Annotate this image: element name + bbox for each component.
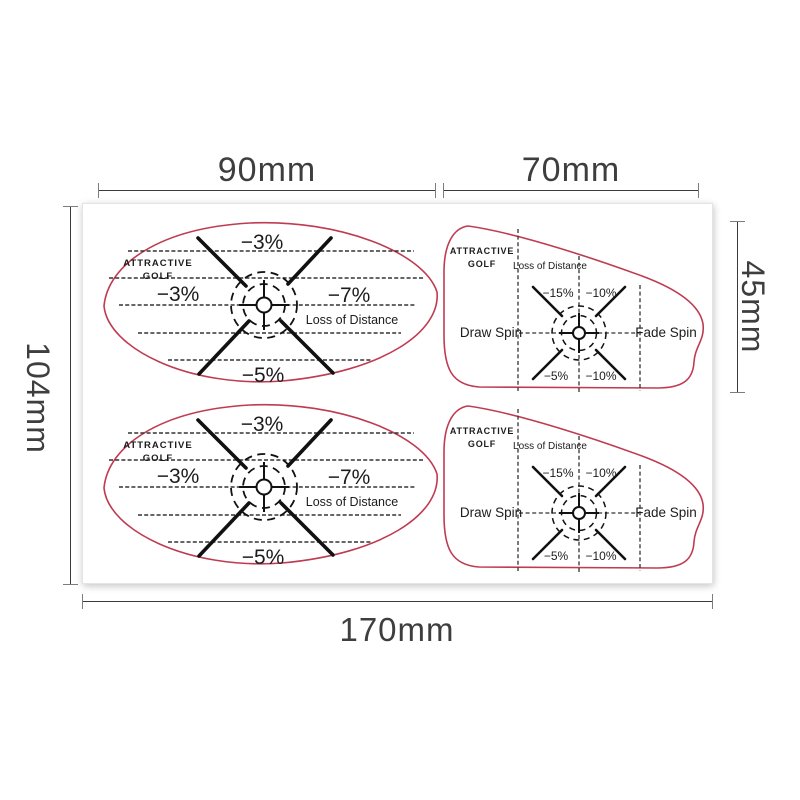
iron-sticker-bottom: ATTRACTIVE GOLF Loss of Distance −15% −1… [441, 397, 709, 577]
upper-left-pct: −15% [542, 466, 573, 480]
right-loss-pct: −7% [328, 466, 371, 489]
bottom-loss-pct: −5% [242, 546, 285, 569]
crosshair-center [257, 480, 272, 495]
crosshair-center [573, 507, 585, 519]
dim-45mm-tick-top [730, 221, 745, 222]
brand-line2: GOLF [468, 439, 496, 449]
dim-70mm-tick-right [698, 183, 699, 198]
dim-90mm-tick-right [435, 183, 436, 198]
fade-spin-label: Fade Spin [635, 505, 697, 520]
dim-45mm-line [737, 221, 738, 393]
loss-of-distance-label: Loss of Distance [306, 313, 398, 327]
brand-line1: ATTRACTIVE [450, 426, 514, 436]
sticker-sheet: ATTRACTIVE GOLF −3% −3% −7% Loss of Dist… [82, 203, 713, 584]
draw-spin-label: Draw Spin [460, 505, 522, 520]
dim-45mm-label: 45mm [734, 239, 772, 375]
right-loss-pct: −7% [328, 284, 371, 307]
brand-line1: ATTRACTIVE [450, 246, 514, 256]
crosshair-center [573, 327, 585, 339]
dim-70mm-tick-left [443, 183, 444, 198]
dim-70mm-line [443, 190, 699, 191]
top-loss-pct: −3% [241, 413, 284, 436]
dim-104mm-line [70, 206, 71, 585]
loss-of-distance-label: Loss of Distance [513, 441, 587, 452]
dim-90mm-tick-left [98, 183, 99, 198]
brand-line2: GOLF [143, 453, 173, 464]
crosshair-center [257, 298, 272, 313]
lower-right-pct: −10% [585, 369, 616, 383]
left-loss-pct: −3% [157, 465, 200, 488]
brand-line1: ATTRACTIVE [123, 258, 192, 269]
loss-of-distance-label: Loss of Distance [513, 261, 587, 272]
brand-line1: ATTRACTIVE [123, 440, 192, 451]
brand-line2: GOLF [143, 271, 173, 282]
dim-90mm-label: 90mm [199, 151, 335, 189]
top-loss-pct: −3% [241, 231, 284, 254]
dim-104mm-label: 104mm [19, 330, 57, 466]
dim-104mm-tick-top [63, 206, 78, 207]
driver-sticker-top: ATTRACTIVE GOLF −3% −3% −7% Loss of Dist… [100, 216, 440, 392]
upper-left-pct: −15% [542, 286, 573, 300]
dim-170mm-line [82, 601, 713, 602]
lower-left-pct: −5% [544, 549, 569, 563]
dim-170mm-tick-right [712, 594, 713, 609]
dim-170mm-label: 170mm [329, 611, 465, 649]
fade-spin-label: Fade Spin [635, 325, 697, 340]
iron-sticker-top: ATTRACTIVE GOLF Loss of Distance −15% −1… [441, 217, 709, 397]
dim-70mm-label: 70mm [503, 151, 639, 189]
bottom-loss-pct: −5% [242, 364, 285, 387]
lower-left-pct: −5% [544, 369, 569, 383]
dim-90mm-line [98, 190, 436, 191]
product-dimension-diagram: 90mm 70mm 104mm 45mm 170mm [0, 0, 800, 800]
loss-of-distance-label: Loss of Distance [306, 495, 398, 509]
driver-sticker-bottom: ATTRACTIVE GOLF −3% −3% −7% Loss of Dist… [100, 398, 440, 574]
left-loss-pct: −3% [157, 283, 200, 306]
dim-104mm-tick-bottom [63, 584, 78, 585]
lower-right-pct: −10% [585, 549, 616, 563]
upper-right-pct: −10% [585, 466, 616, 480]
draw-spin-label: Draw Spin [460, 325, 522, 340]
brand-line2: GOLF [468, 259, 496, 269]
upper-right-pct: −10% [585, 286, 616, 300]
dim-45mm-tick-bottom [730, 392, 745, 393]
dim-170mm-tick-left [82, 594, 83, 609]
